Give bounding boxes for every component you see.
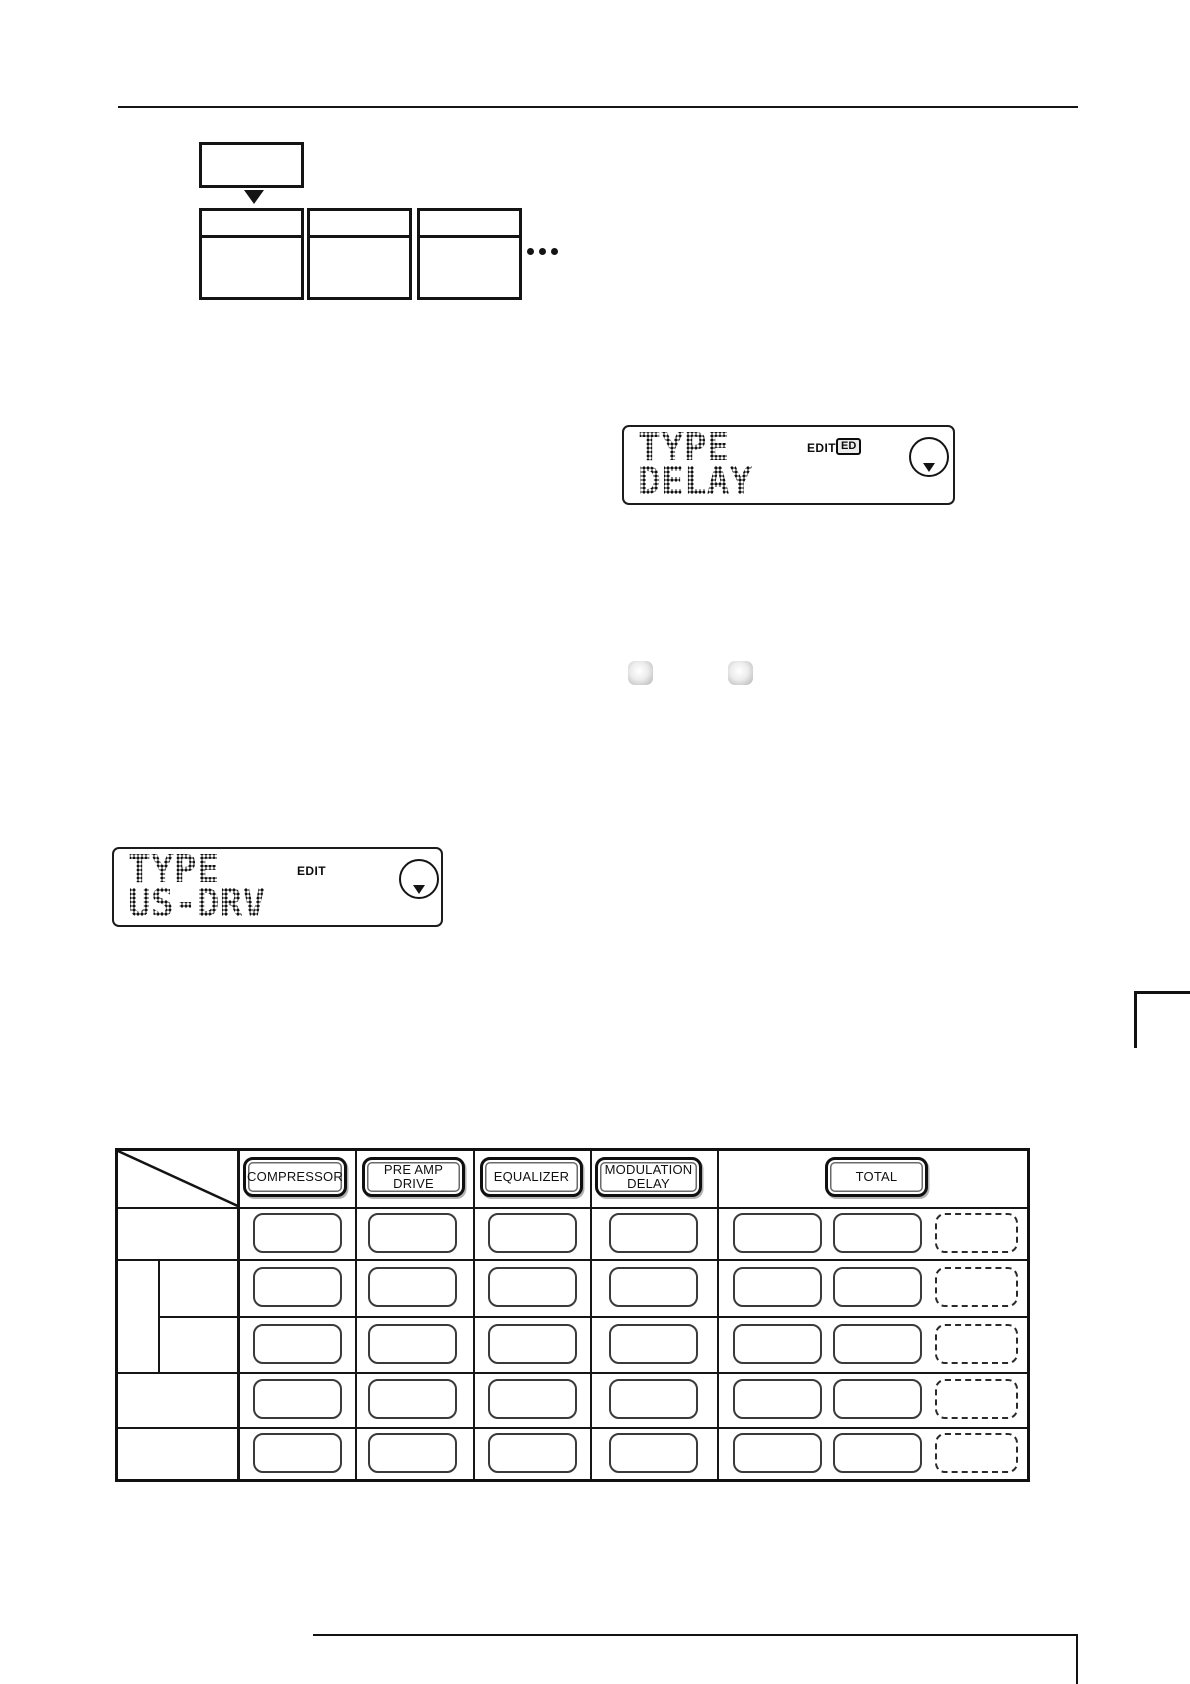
lcd-display-delay: TYPEDELAY EDIT ED <box>622 425 955 505</box>
column-header-label: PRE AMPDRIVE <box>384 1163 443 1191</box>
write-in-box-dashed <box>935 1213 1018 1253</box>
horizontal-ellipsis-icon <box>527 248 558 255</box>
write-in-box <box>609 1324 698 1364</box>
flowchart-parent-box <box>199 142 304 188</box>
column-header-modulation-delay: MODULATIONDELAY <box>595 1157 702 1197</box>
table-grid-line <box>473 1151 475 1479</box>
flowchart-child-box <box>417 208 522 300</box>
write-in-box <box>253 1324 342 1364</box>
table-grid-line <box>118 1372 1027 1374</box>
manual-page: TYPEDELAY EDIT ED TYPEUS-DRV EDIT <box>0 0 1190 1684</box>
write-in-box <box>609 1379 698 1419</box>
write-in-box <box>488 1213 577 1253</box>
effect-module-button <box>628 661 653 685</box>
column-header-label: EQUALIZER <box>494 1170 569 1184</box>
column-header-total: TOTAL <box>825 1157 928 1197</box>
lcd-display-usdrv: TYPEUS-DRV EDIT <box>112 847 443 927</box>
edit-badge: ED <box>836 438 861 455</box>
page-bottom-rule <box>313 1634 1078 1684</box>
table-grid-line <box>355 1151 357 1479</box>
write-in-box <box>733 1267 822 1307</box>
write-in-box <box>609 1433 698 1473</box>
edit-indicator: EDIT <box>297 864 326 878</box>
table-grid-line <box>118 1259 1027 1261</box>
write-in-box <box>488 1379 577 1419</box>
write-in-box <box>253 1267 342 1307</box>
page-side-tab <box>1134 991 1190 1048</box>
write-in-box <box>733 1433 822 1473</box>
write-in-box <box>733 1324 822 1364</box>
write-in-box <box>368 1267 457 1307</box>
write-in-box <box>488 1433 577 1473</box>
down-arrow-icon <box>244 190 264 204</box>
page-top-rule <box>118 106 1078 108</box>
write-in-box <box>609 1213 698 1253</box>
column-header-preamp-drive: PRE AMPDRIVE <box>362 1157 465 1197</box>
column-header-label: COMPRESSOR <box>247 1170 343 1184</box>
write-in-box <box>733 1379 822 1419</box>
write-in-box <box>368 1324 457 1364</box>
table-grid-line <box>118 1207 1027 1209</box>
write-in-box <box>833 1324 922 1364</box>
write-in-box <box>253 1213 342 1253</box>
table-grid-line <box>717 1151 719 1479</box>
column-header-label: TOTAL <box>856 1170 898 1184</box>
column-header-equalizer: EQUALIZER <box>480 1157 583 1197</box>
write-in-box <box>609 1267 698 1307</box>
lcd-text: TYPEDELAY <box>638 430 752 498</box>
write-in-box <box>488 1267 577 1307</box>
table-grid-line <box>590 1151 592 1479</box>
table-grid-line <box>237 1151 240 1479</box>
down-triangle-icon <box>923 463 935 472</box>
table-grid-line <box>118 1427 1027 1429</box>
write-in-box <box>253 1433 342 1473</box>
column-header-label: MODULATIONDELAY <box>605 1163 693 1191</box>
effects-table: COMPRESSOR PRE AMPDRIVE EQUALIZER MODULA… <box>115 1148 1030 1482</box>
write-in-box-dashed <box>935 1433 1018 1473</box>
column-header-compressor: COMPRESSOR <box>243 1157 347 1197</box>
flowchart-child-box <box>307 208 412 300</box>
write-in-box <box>833 1379 922 1419</box>
write-in-box <box>833 1267 922 1307</box>
write-in-box <box>833 1213 922 1253</box>
write-in-box <box>368 1213 457 1253</box>
down-triangle-icon <box>413 885 425 894</box>
write-in-box <box>253 1379 342 1419</box>
child-box-header <box>310 211 409 238</box>
diagonal-corner-line <box>118 1151 240 1207</box>
write-in-box-dashed <box>935 1267 1018 1307</box>
write-in-box <box>833 1433 922 1473</box>
jog-dial-icon <box>399 859 439 899</box>
child-box-header <box>202 211 301 238</box>
write-in-box <box>733 1213 822 1253</box>
write-in-box-dashed <box>935 1324 1018 1364</box>
edit-indicator: EDIT <box>807 441 836 455</box>
flowchart-child-box <box>199 208 304 300</box>
write-in-box <box>368 1433 457 1473</box>
jog-dial-icon <box>909 437 949 477</box>
table-grid-line <box>158 1316 1027 1318</box>
effect-module-button <box>728 661 753 685</box>
write-in-box <box>488 1324 577 1364</box>
write-in-box <box>368 1379 457 1419</box>
child-box-header <box>420 211 519 238</box>
lcd-text: TYPEUS-DRV <box>128 852 265 920</box>
write-in-box-dashed <box>935 1379 1018 1419</box>
